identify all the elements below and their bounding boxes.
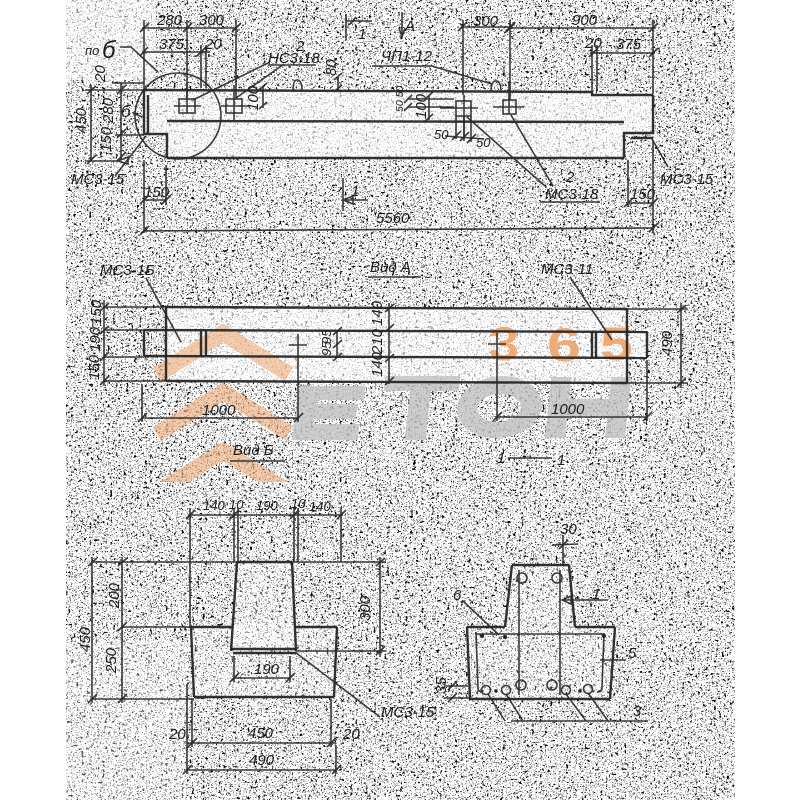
svg-text:450: 450 bbox=[73, 107, 90, 133]
svg-text:20: 20 bbox=[92, 65, 109, 83]
svg-text:375: 375 bbox=[616, 36, 642, 53]
svg-text:190: 190 bbox=[256, 498, 278, 513]
svg-text:150: 150 bbox=[630, 186, 656, 203]
svg-text:10: 10 bbox=[229, 497, 244, 512]
svg-text:300: 300 bbox=[357, 595, 374, 621]
svg-text:210: 210 bbox=[369, 328, 386, 355]
svg-text:1: 1 bbox=[497, 450, 505, 467]
svg-text:490: 490 bbox=[659, 330, 676, 356]
svg-text:3: 3 bbox=[633, 703, 642, 720]
svg-text:450: 450 bbox=[248, 725, 274, 742]
svg-text:190: 190 bbox=[254, 661, 280, 678]
svg-text:140: 140 bbox=[203, 498, 225, 513]
svg-text:1: 1 bbox=[557, 452, 565, 469]
svg-text:5: 5 bbox=[628, 645, 637, 662]
svg-text:280: 280 bbox=[100, 97, 117, 124]
svg-text:300: 300 bbox=[199, 12, 225, 29]
svg-text:по: по bbox=[85, 43, 99, 58]
svg-text:6: 6 bbox=[547, 318, 581, 371]
svg-text:140: 140 bbox=[309, 499, 331, 514]
svg-text:1000: 1000 bbox=[551, 401, 585, 418]
svg-text:б: б bbox=[121, 102, 132, 121]
svg-text:Вид А: Вид А bbox=[370, 259, 411, 276]
svg-text:20: 20 bbox=[342, 726, 360, 743]
svg-text:МС3-11: МС3-11 bbox=[541, 261, 593, 278]
svg-text:Вид Б: Вид Б bbox=[233, 442, 274, 459]
svg-text:МС3-15: МС3-15 bbox=[381, 704, 435, 721]
svg-text:А: А bbox=[404, 18, 415, 35]
svg-text:80: 80 bbox=[323, 59, 340, 76]
svg-text:МС3-15: МС3-15 bbox=[660, 171, 714, 188]
svg-text:6: 6 bbox=[453, 587, 462, 604]
svg-text:140: 140 bbox=[369, 300, 386, 326]
svg-text:20: 20 bbox=[168, 726, 186, 743]
svg-text:150: 150 bbox=[88, 299, 105, 325]
svg-text:375: 375 bbox=[159, 36, 185, 53]
svg-text:280: 280 bbox=[156, 12, 183, 29]
svg-text:95: 95 bbox=[319, 341, 334, 356]
svg-text:1000: 1000 bbox=[202, 402, 236, 419]
svg-text:200: 200 bbox=[106, 582, 123, 609]
svg-text:2: 2 bbox=[565, 169, 575, 186]
svg-text:50 50: 50 50 bbox=[394, 86, 406, 112]
svg-text:б: б bbox=[102, 37, 117, 64]
svg-text:1: 1 bbox=[351, 183, 359, 200]
svg-text:ЧП1-12: ЧП1-12 bbox=[381, 48, 433, 65]
svg-text:МС3-18: МС3-18 bbox=[545, 186, 599, 203]
svg-text:20: 20 bbox=[204, 36, 222, 53]
svg-text:1: 1 bbox=[358, 26, 366, 43]
svg-text:140: 140 bbox=[369, 351, 386, 377]
svg-text:250: 250 bbox=[103, 647, 120, 674]
svg-text:5560: 5560 bbox=[376, 210, 410, 227]
svg-text:490: 490 bbox=[249, 752, 275, 769]
svg-text:20: 20 bbox=[584, 35, 602, 52]
svg-text:190: 190 bbox=[87, 326, 104, 352]
svg-text:50: 50 bbox=[434, 127, 449, 142]
svg-text:150: 150 bbox=[98, 126, 115, 152]
svg-text:150: 150 bbox=[86, 354, 103, 380]
svg-text:900: 900 bbox=[572, 12, 598, 29]
svg-text:МС3-1Б: МС3-1Б bbox=[100, 262, 155, 279]
